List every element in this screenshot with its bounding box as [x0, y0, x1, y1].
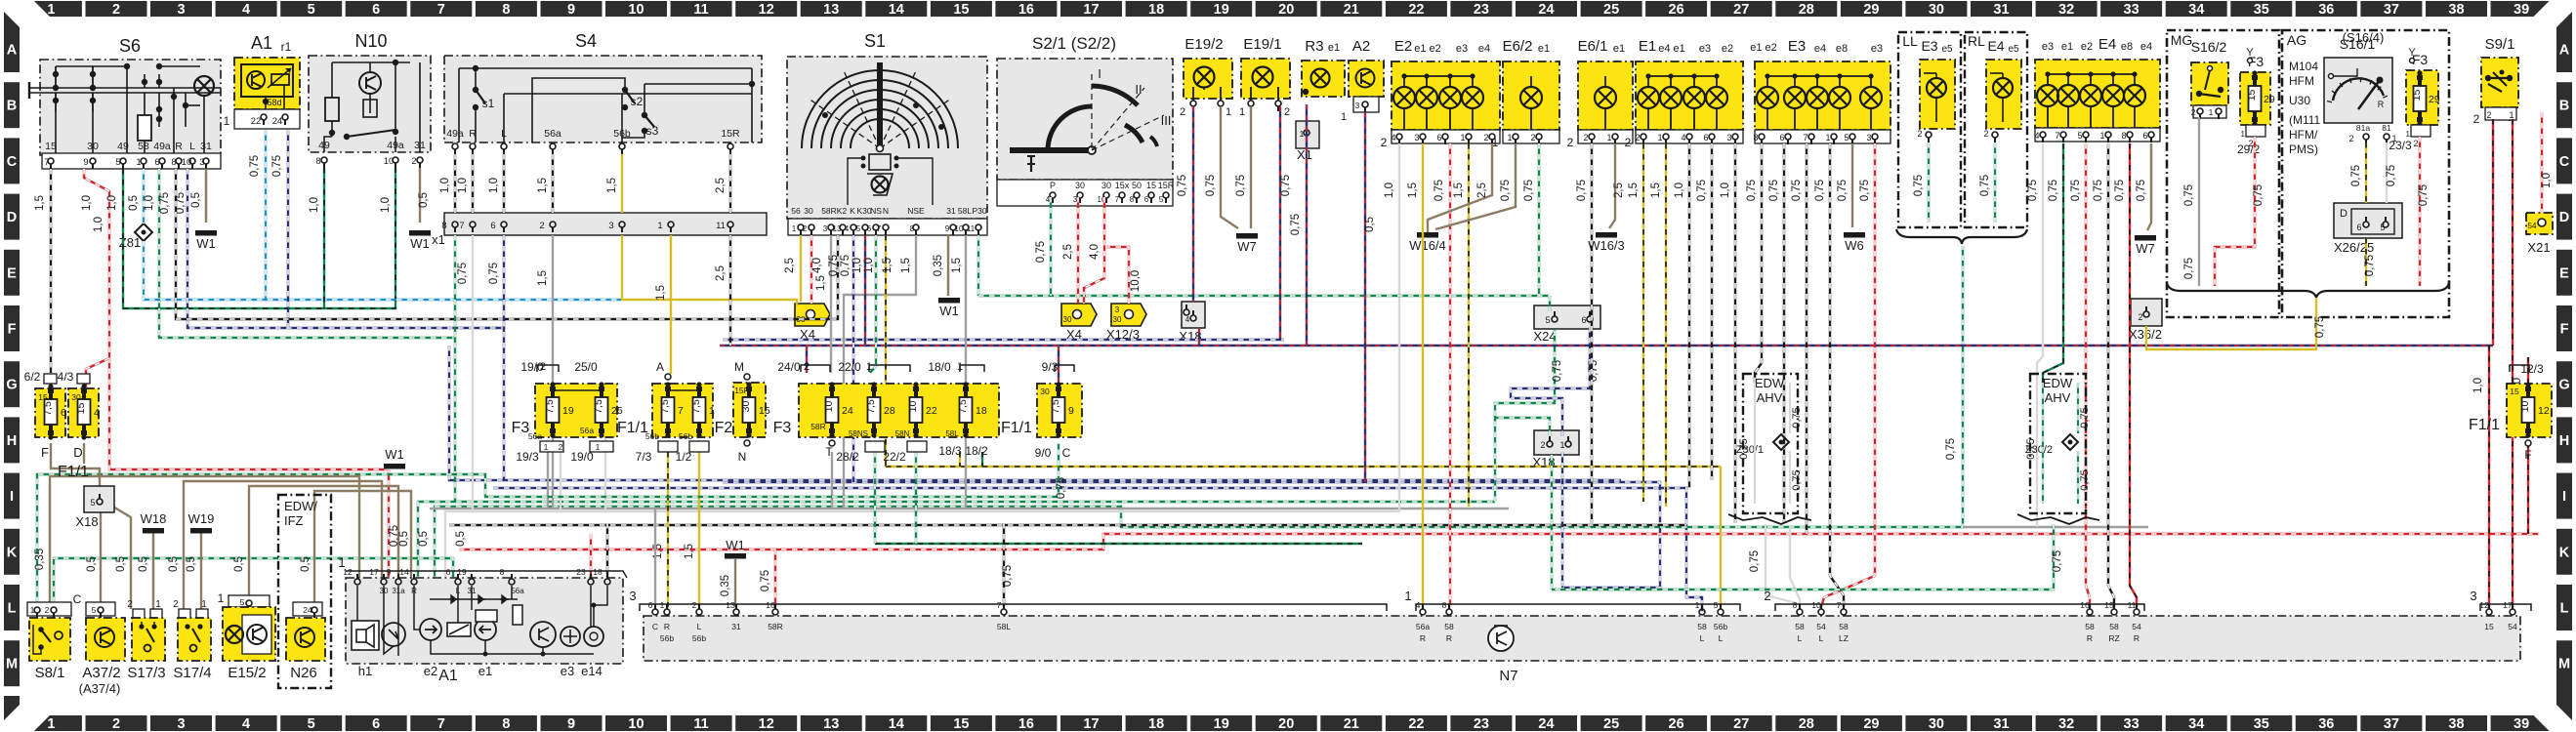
- svg-text:11: 11: [716, 221, 726, 231]
- svg-text:30: 30: [1929, 716, 1944, 732]
- svg-text:P30: P30: [972, 206, 986, 216]
- svg-text:1,5: 1,5: [537, 270, 549, 286]
- svg-text:8: 8: [500, 567, 505, 577]
- svg-text:E: E: [2559, 265, 2569, 281]
- svg-text:0,75: 0,75: [1035, 241, 1047, 263]
- svg-text:58NS: 58NS: [849, 429, 868, 438]
- svg-text:E2: E2: [1394, 38, 1412, 55]
- svg-text:0,75: 0,75: [1791, 469, 1803, 490]
- svg-text:58: 58: [1697, 622, 1707, 631]
- svg-text:A: A: [656, 360, 664, 374]
- svg-text:X21: X21: [2527, 240, 2550, 255]
- svg-text:54: 54: [1816, 622, 1826, 631]
- svg-text:0,5: 0,5: [86, 556, 98, 572]
- svg-text:R3: R3: [1305, 38, 1323, 55]
- svg-text:32: 32: [2058, 716, 2074, 732]
- svg-text:31: 31: [1993, 716, 2009, 732]
- svg-text:30: 30: [1063, 315, 1072, 324]
- svg-text:5: 5: [92, 605, 97, 615]
- svg-text:r1: r1: [281, 40, 292, 54]
- svg-text:D: D: [2340, 208, 2347, 220]
- svg-text:e8: e8: [2121, 41, 2133, 53]
- svg-text:S9/1: S9/1: [2485, 36, 2515, 53]
- svg-text:F1/1: F1/1: [1001, 420, 1032, 436]
- svg-text:15: 15: [2411, 90, 2423, 102]
- svg-text:2: 2: [1540, 440, 1545, 450]
- svg-text:17: 17: [369, 567, 379, 577]
- svg-text:19/3: 19/3: [516, 450, 539, 464]
- svg-text:N7: N7: [1499, 668, 1517, 684]
- svg-text:6: 6: [1779, 133, 1784, 142]
- svg-text:0,75: 0,75: [2093, 180, 2104, 201]
- svg-text:0,75: 0,75: [828, 255, 840, 276]
- svg-text:1: 1: [1657, 133, 1662, 142]
- svg-text:0,5: 0,5: [138, 556, 149, 572]
- svg-text:2: 2: [1180, 106, 1185, 118]
- svg-text:30: 30: [1101, 181, 1111, 190]
- svg-text:39: 39: [2514, 2, 2529, 18]
- svg-text:1: 1: [957, 361, 963, 373]
- svg-text:I: I: [2562, 489, 2566, 505]
- svg-text:s1: s1: [482, 97, 495, 110]
- svg-text:E15/2: E15/2: [228, 665, 266, 681]
- svg-text:2: 2: [1764, 589, 1770, 603]
- svg-text:e1: e1: [2061, 41, 2073, 53]
- svg-text:L: L: [189, 141, 195, 152]
- svg-text:8: 8: [502, 716, 510, 732]
- svg-text:10: 10: [907, 401, 919, 413]
- svg-text:e1 e2: e1 e2: [1750, 42, 1777, 54]
- svg-text:6: 6: [372, 2, 380, 18]
- svg-text:31: 31: [1993, 2, 2009, 18]
- svg-text:6/2: 6/2: [24, 370, 41, 384]
- svg-text:Y: Y: [2246, 47, 2254, 59]
- svg-text:14: 14: [889, 2, 904, 18]
- svg-text:e3: e3: [2042, 41, 2054, 53]
- svg-text:0,75: 0,75: [1791, 407, 1803, 427]
- svg-text:12/3: 12/3: [2520, 362, 2544, 376]
- svg-text:2: 2: [411, 156, 416, 167]
- svg-text:34: 34: [2188, 716, 2204, 732]
- svg-text:30: 30: [87, 141, 99, 152]
- svg-text:N: N: [738, 450, 747, 464]
- svg-text:9: 9: [567, 2, 575, 18]
- svg-text:E3: E3: [1921, 38, 1937, 54]
- svg-text:A: A: [2559, 43, 2570, 59]
- svg-text:1: 1: [792, 224, 797, 233]
- svg-text:2,5: 2,5: [1476, 183, 1488, 198]
- svg-text:L: L: [501, 128, 507, 140]
- svg-text:28: 28: [1799, 2, 1814, 18]
- svg-text:AHV: AHV: [1757, 390, 1783, 405]
- svg-text:0,75: 0,75: [2070, 180, 2082, 201]
- svg-text:e3: e3: [1456, 43, 1468, 55]
- svg-text:7/3: 7/3: [636, 450, 652, 464]
- svg-text:A2: A2: [1352, 38, 1370, 55]
- svg-text:26: 26: [1669, 2, 1684, 18]
- svg-text:0,75: 0,75: [1738, 438, 1750, 459]
- svg-text:18: 18: [1148, 2, 1164, 18]
- svg-text:F: F: [8, 322, 17, 338]
- svg-text:L: L: [697, 622, 702, 631]
- svg-text:1: 1: [1825, 133, 1830, 142]
- svg-text:2: 2: [1625, 136, 1632, 149]
- svg-text:S16/1: S16/1: [2340, 36, 2376, 52]
- svg-text:38: 38: [2448, 716, 2464, 732]
- svg-text:5: 5: [308, 716, 315, 732]
- svg-text:2,5: 2,5: [784, 258, 796, 273]
- svg-text:0,75: 0,75: [2079, 407, 2091, 427]
- svg-text:F2: F2: [715, 420, 733, 436]
- svg-text:T: T: [825, 445, 833, 459]
- svg-text:8: 8: [1793, 600, 1798, 610]
- svg-text:2: 2: [2413, 139, 2418, 148]
- svg-text:0,75: 0,75: [159, 192, 171, 214]
- svg-text:22: 22: [1408, 2, 1424, 18]
- svg-text:3: 3: [1355, 101, 1360, 110]
- svg-text:56b: 56b: [679, 431, 692, 441]
- svg-text:56b: 56b: [660, 633, 674, 643]
- svg-text:e1 e2: e1 e2: [1414, 43, 1441, 55]
- svg-text:2: 2: [559, 442, 563, 452]
- svg-text:17: 17: [1083, 2, 1099, 18]
- svg-text:1,0: 1,0: [863, 258, 875, 273]
- svg-text:x1: x1: [432, 232, 445, 247]
- svg-text:2: 2: [1530, 133, 1535, 142]
- svg-text:S1: S1: [864, 31, 886, 51]
- svg-text:0,75: 0,75: [2183, 184, 2195, 206]
- svg-text:0,75: 0,75: [1979, 175, 1991, 196]
- svg-text:22/0: 22/0: [838, 360, 861, 374]
- svg-text:5: 5: [1545, 315, 1550, 325]
- svg-text:0,75: 0,75: [1588, 360, 1600, 382]
- svg-text:10: 10: [2519, 401, 2531, 413]
- svg-text:0,75: 0,75: [2114, 180, 2126, 201]
- svg-text:56b: 56b: [645, 431, 659, 441]
- svg-text:8: 8: [502, 2, 510, 18]
- svg-text:49: 49: [318, 140, 330, 151]
- svg-text:1,5: 1,5: [606, 178, 618, 193]
- svg-text:19: 19: [562, 405, 574, 417]
- svg-text:17: 17: [1083, 716, 1099, 732]
- svg-text:0,75: 0,75: [1749, 550, 1761, 572]
- svg-text:29: 29: [2429, 94, 2440, 105]
- svg-text:22: 22: [251, 116, 262, 127]
- svg-text:W16/3: W16/3: [1588, 238, 1625, 253]
- svg-text:E19/2: E19/2: [1184, 36, 1223, 53]
- svg-text:1: 1: [201, 599, 207, 610]
- svg-text:0,75: 0,75: [1500, 180, 1512, 201]
- svg-text:0,5: 0,5: [418, 192, 430, 208]
- svg-text:58: 58: [1444, 622, 1454, 631]
- svg-text:W1: W1: [726, 538, 745, 552]
- svg-text:M: M: [6, 657, 18, 672]
- svg-text:0,75: 0,75: [1552, 360, 1563, 382]
- svg-text:58: 58: [138, 141, 149, 152]
- svg-text:1: 1: [1404, 589, 1411, 603]
- svg-text:30: 30: [804, 206, 813, 216]
- svg-text:G: G: [2558, 378, 2569, 393]
- svg-text:24: 24: [1538, 716, 1554, 732]
- svg-text:W1: W1: [385, 447, 404, 462]
- svg-text:F: F: [41, 445, 49, 460]
- svg-text:1,0: 1,0: [852, 258, 863, 273]
- svg-text:10: 10: [823, 401, 835, 413]
- svg-text:X1: X1: [1297, 147, 1312, 162]
- svg-text:4,0: 4,0: [811, 258, 823, 273]
- svg-text:5: 5: [1844, 133, 1849, 142]
- svg-text:15R: 15R: [1158, 181, 1175, 190]
- svg-text:6: 6: [2142, 131, 2147, 141]
- svg-text:E4: E4: [2098, 36, 2116, 53]
- svg-text:6: 6: [648, 600, 653, 610]
- svg-text:S17/3: S17/3: [127, 665, 165, 681]
- svg-text:23: 23: [1474, 2, 1489, 18]
- svg-text:0,5: 0,5: [1364, 217, 1376, 232]
- svg-text:F3: F3: [512, 420, 530, 436]
- svg-text:E6/1: E6/1: [1578, 38, 1608, 55]
- svg-text:18: 18: [593, 567, 602, 577]
- svg-text:1,0: 1,0: [488, 178, 500, 193]
- svg-text:22: 22: [1408, 716, 1424, 732]
- svg-text:IFZ: IFZ: [284, 513, 304, 528]
- svg-text:1,0: 1,0: [81, 195, 93, 211]
- svg-text:3: 3: [177, 2, 185, 18]
- svg-text:58R: 58R: [810, 422, 826, 431]
- svg-text:0,75: 0,75: [1837, 180, 1849, 201]
- svg-text:1,0: 1,0: [93, 217, 104, 232]
- svg-text:28: 28: [884, 405, 895, 417]
- svg-text:D: D: [73, 445, 82, 460]
- svg-text:58R: 58R: [821, 206, 837, 216]
- svg-text:R: R: [2378, 100, 2385, 109]
- svg-text:7,5: 7,5: [593, 399, 604, 414]
- svg-text:0,75: 0,75: [2079, 469, 2091, 490]
- svg-text:1,0: 1,0: [439, 178, 451, 193]
- svg-text:HFM/: HFM/: [2289, 128, 2318, 142]
- svg-text:56a: 56a: [580, 426, 594, 435]
- svg-text:e2: e2: [2081, 41, 2093, 53]
- svg-text:0,75: 0,75: [2136, 180, 2147, 201]
- svg-text:1: 1: [660, 600, 665, 610]
- svg-text:20: 20: [1278, 716, 1294, 732]
- svg-text:9: 9: [387, 567, 392, 577]
- svg-text:28: 28: [1799, 716, 1814, 732]
- svg-text:22: 22: [926, 405, 937, 417]
- svg-text:56a: 56a: [544, 128, 561, 140]
- svg-text:W1: W1: [939, 304, 959, 318]
- svg-text:0,75: 0,75: [1523, 180, 1535, 201]
- svg-text:4: 4: [1681, 133, 1685, 142]
- svg-text:35: 35: [2254, 2, 2269, 18]
- svg-text:K: K: [7, 545, 18, 560]
- svg-text:2: 2: [173, 599, 179, 610]
- svg-text:58R: 58R: [768, 622, 783, 631]
- svg-text:L: L: [1719, 633, 1724, 643]
- svg-text:4: 4: [242, 716, 250, 732]
- svg-text:0,5: 0,5: [418, 531, 430, 547]
- svg-text:AG: AG: [2287, 32, 2306, 48]
- svg-text:21: 21: [1344, 716, 1359, 732]
- svg-text:RZ: RZ: [2108, 633, 2119, 643]
- svg-text:1/2: 1/2: [676, 450, 692, 464]
- svg-text:0,75: 0,75: [271, 155, 283, 177]
- svg-text:E3: E3: [1788, 38, 1806, 55]
- svg-text:8: 8: [2121, 131, 2126, 141]
- svg-text:7: 7: [459, 221, 464, 231]
- svg-text:R: R: [1420, 633, 1426, 643]
- svg-text:56b: 56b: [692, 633, 706, 643]
- svg-text:R: R: [664, 622, 670, 631]
- svg-text:W7: W7: [2136, 241, 2155, 256]
- svg-text:1: 1: [218, 591, 225, 605]
- svg-text:6: 6: [446, 567, 451, 577]
- svg-text:2: 2: [1983, 129, 1988, 139]
- svg-text:S17/4: S17/4: [173, 665, 211, 681]
- svg-text:2: 2: [2473, 112, 2480, 126]
- svg-text:25: 25: [1603, 2, 1619, 18]
- svg-text:L: L: [1798, 633, 1803, 643]
- svg-text:2: 2: [1583, 133, 1588, 142]
- svg-text:C: C: [73, 592, 82, 606]
- svg-text:(M111: (M111: [2289, 113, 2321, 127]
- svg-text:RL: RL: [1968, 33, 1985, 49]
- svg-text:I: I: [10, 489, 14, 505]
- svg-text:0,75: 0,75: [1280, 175, 1292, 196]
- svg-text:11: 11: [2128, 600, 2137, 610]
- svg-text:58d: 58d: [267, 98, 281, 107]
- svg-text:29/2: 29/2: [2237, 142, 2261, 156]
- svg-text:37: 37: [2384, 2, 2399, 18]
- svg-text:1,5: 1,5: [1628, 183, 1640, 198]
- svg-text:3: 3: [823, 224, 828, 233]
- svg-text:19/0: 19/0: [570, 450, 594, 464]
- svg-text:24: 24: [842, 405, 853, 417]
- svg-text:7,5: 7,5: [544, 399, 556, 414]
- svg-text:5: 5: [2077, 131, 2082, 141]
- svg-text:18: 18: [1148, 716, 1164, 732]
- svg-text:N: N: [883, 206, 889, 216]
- svg-text:4,0: 4,0: [1089, 244, 1101, 260]
- svg-text:H: H: [2559, 433, 2569, 449]
- svg-text:S16/2: S16/2: [2191, 39, 2227, 55]
- svg-text:0,75: 0,75: [1859, 180, 1871, 201]
- svg-text:0,75: 0,75: [2386, 165, 2397, 186]
- svg-text:19: 19: [1214, 2, 1229, 18]
- svg-text:1,0: 1,0: [1384, 183, 1395, 198]
- svg-text:30: 30: [740, 401, 752, 413]
- svg-text:G: G: [6, 378, 17, 393]
- svg-text:2: 2: [127, 599, 133, 610]
- svg-text:31: 31: [946, 206, 956, 216]
- svg-text:8: 8: [441, 221, 446, 231]
- svg-text:56: 56: [791, 206, 801, 216]
- svg-text:N10: N10: [354, 31, 387, 51]
- svg-text:10: 10: [628, 716, 644, 732]
- svg-text:1,5: 1,5: [684, 544, 695, 559]
- svg-text:0,75: 0,75: [760, 570, 771, 591]
- svg-text:15: 15: [45, 141, 57, 152]
- svg-text:3: 3: [629, 589, 636, 603]
- svg-text:F1/1: F1/1: [2469, 417, 2500, 433]
- svg-text:4: 4: [2034, 131, 2039, 141]
- svg-text:C: C: [7, 154, 18, 170]
- svg-text:6: 6: [1703, 133, 1708, 142]
- svg-text:S2/1 (S2/2): S2/1 (S2/2): [1032, 34, 1116, 53]
- svg-text:9: 9: [567, 716, 575, 732]
- svg-text:29: 29: [1863, 716, 1879, 732]
- svg-text:e2: e2: [1722, 43, 1733, 55]
- svg-text:e5: e5: [2008, 44, 2019, 55]
- svg-text:D: D: [2559, 210, 2569, 225]
- svg-text:4: 4: [94, 407, 100, 419]
- svg-text:I: I: [1098, 66, 1101, 81]
- svg-text:81: 81: [2382, 123, 2391, 133]
- svg-text:W1: W1: [196, 236, 216, 251]
- svg-text:15R: 15R: [721, 128, 740, 140]
- svg-text:0,75: 0,75: [1746, 180, 1758, 201]
- svg-text:6: 6: [490, 221, 495, 231]
- svg-text:8: 8: [315, 156, 320, 167]
- svg-text:9: 9: [1068, 405, 1074, 417]
- svg-text:C: C: [2559, 154, 2570, 170]
- svg-text:M104: M104: [2289, 60, 2318, 73]
- svg-text:0,5: 0,5: [233, 556, 245, 572]
- svg-text:35: 35: [2254, 716, 2269, 732]
- svg-text:0,75: 0,75: [1696, 180, 1708, 201]
- svg-text:14: 14: [889, 716, 904, 732]
- svg-text:58L: 58L: [958, 206, 972, 216]
- svg-text:2: 2: [1381, 136, 1388, 149]
- svg-text:56b: 56b: [1714, 622, 1727, 631]
- svg-text:M: M: [734, 360, 744, 374]
- svg-text:3: 3: [2470, 589, 2476, 603]
- svg-text:2: 2: [1917, 129, 1922, 139]
- svg-text:(A37/4): (A37/4): [79, 681, 121, 696]
- svg-text:K: K: [2559, 545, 2570, 560]
- svg-text:1: 1: [657, 221, 662, 231]
- svg-text:15: 15: [759, 405, 770, 417]
- svg-text:C: C: [1062, 446, 1071, 460]
- svg-text:15: 15: [953, 2, 969, 18]
- svg-text:18: 18: [976, 405, 987, 417]
- svg-text:W6: W6: [1845, 238, 1864, 253]
- svg-text:3: 3: [177, 716, 185, 732]
- svg-text:33: 33: [2124, 2, 2140, 18]
- svg-text:e3: e3: [1699, 43, 1711, 55]
- svg-text:A37/2: A37/2: [82, 665, 120, 681]
- svg-text:13: 13: [823, 716, 839, 732]
- svg-text:7,5: 7,5: [1050, 399, 1061, 414]
- svg-text:A1: A1: [438, 668, 458, 684]
- svg-text:58: 58: [1795, 622, 1805, 631]
- svg-text:1: 1: [2099, 131, 2104, 141]
- svg-text:D: D: [7, 210, 17, 225]
- svg-text:24: 24: [272, 116, 283, 127]
- svg-text:23: 23: [576, 567, 586, 577]
- svg-text:0,75: 0,75: [1768, 180, 1780, 201]
- svg-text:1,0: 1,0: [144, 195, 155, 211]
- svg-text:20: 20: [1278, 2, 1294, 18]
- svg-text:0,75: 0,75: [1235, 175, 1247, 196]
- svg-text:0,75: 0,75: [2183, 258, 2195, 279]
- svg-text:1,5: 1,5: [34, 195, 46, 211]
- svg-text:15: 15: [1146, 181, 1156, 190]
- svg-text:K2: K2: [837, 206, 848, 216]
- svg-text:4: 4: [1416, 600, 1421, 610]
- svg-text:LZ: LZ: [1839, 633, 1849, 643]
- svg-text:7,5: 7,5: [42, 401, 54, 416]
